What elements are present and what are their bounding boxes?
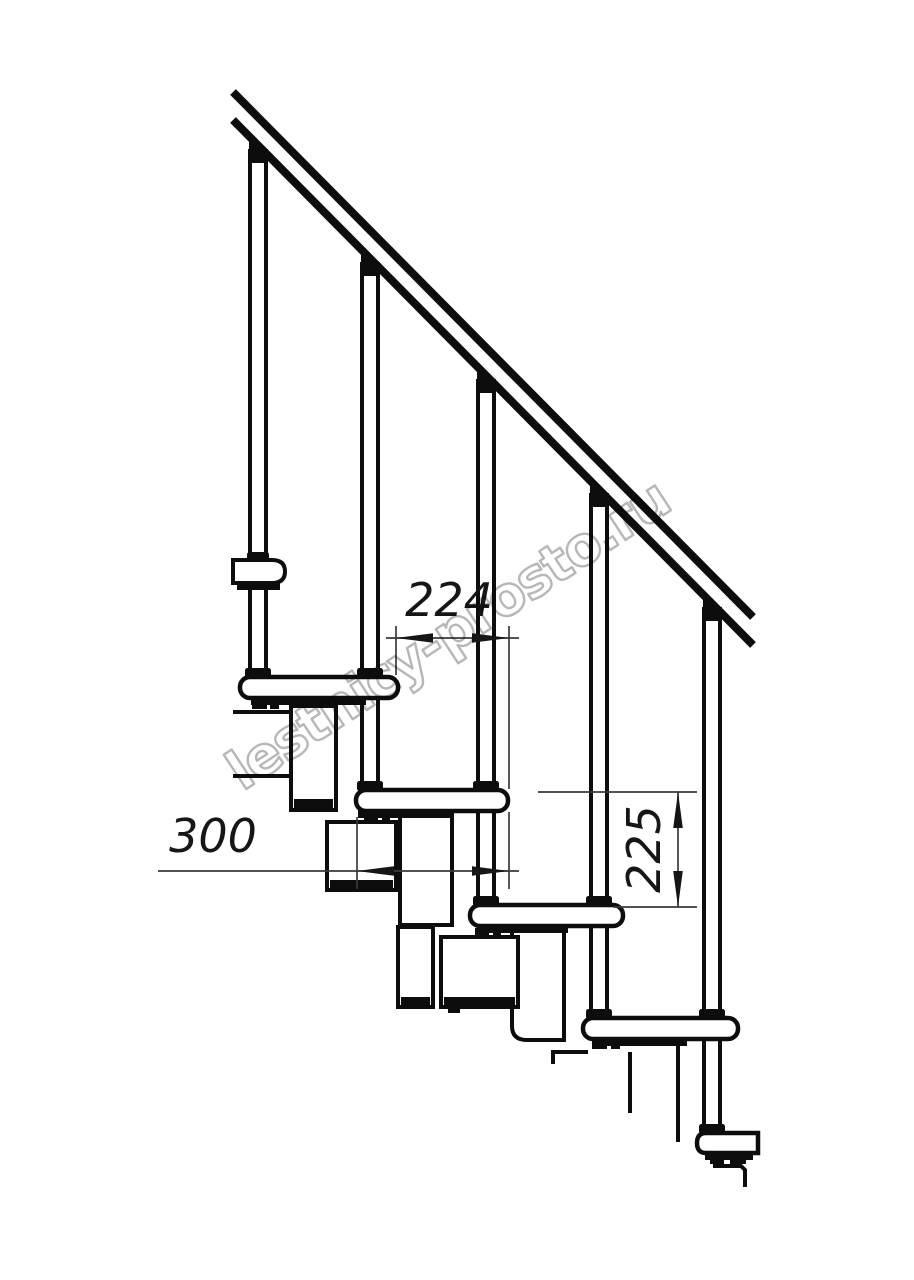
tread-tab [475,928,489,937]
cut-line-module-4 [553,1052,588,1064]
tread-tab [364,812,378,821]
staircase-drawing: 224 300 225 lestnicy-prosto.ru [0,0,914,1280]
staircase-drawing-page: 224 300 225 lestnicy-prosto.ru [0,0,914,1280]
tread-tab [493,930,501,937]
collar [357,781,383,791]
baluster-1 [249,139,267,677]
tread-shadow [478,925,568,933]
module-base-shadow [294,799,333,808]
tread-plate [470,905,623,926]
tread-tab [382,814,390,821]
module-base-shadow [444,997,515,1006]
dimension-rise: 225 [538,792,697,907]
tread-tab [592,1041,607,1049]
arrow-down-icon [673,871,683,907]
support-module-2 [327,822,396,890]
tread-plate [583,1018,738,1039]
bracket-shadow [237,583,280,590]
dimension-rise-label: 225 [617,805,671,893]
watermark: lestnicy-prosto.ru [215,467,681,803]
collar [245,668,271,678]
tread-tab [710,1158,724,1164]
collar [699,1124,725,1134]
collar [473,896,499,906]
tread-tab [252,702,267,709]
dimension-depth-label: 300 [169,809,257,863]
support-tube-2 [400,815,452,925]
tread-plate [356,790,508,811]
collar [586,896,612,906]
baluster-post [704,609,720,1133]
module-base-shadow [330,880,393,888]
upper-landing-bracket [233,560,285,590]
tread-tab [611,1043,620,1049]
baluster-5 [703,597,721,1133]
cut-line-module-5 [713,1166,745,1187]
collar [699,1009,725,1019]
baluster-post [250,151,266,677]
bracket-plate [233,560,285,583]
collar [586,1009,612,1019]
tread-tab [730,1158,746,1164]
collar [473,781,499,791]
support-tube-2b [398,927,433,1007]
module-base-shadow [401,997,430,1006]
arrow-up-icon [673,792,683,828]
support-module-3 [441,937,518,1007]
tread-plate [697,1133,758,1153]
module-foot-tab [448,1007,460,1013]
tread-5 [697,1133,758,1164]
collar [247,552,269,561]
